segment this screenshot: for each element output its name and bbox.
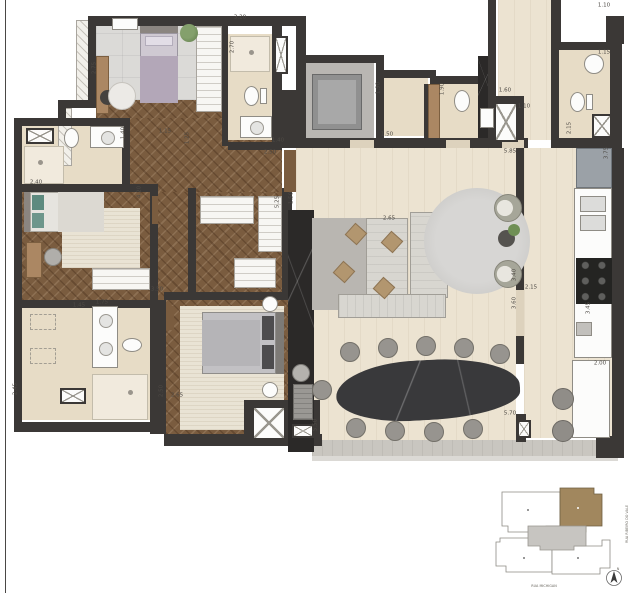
dimension-label: 1.15: [598, 50, 610, 56]
dimension-label: 2.50: [159, 385, 165, 397]
dresser: [112, 18, 138, 30]
closet-x: [292, 424, 314, 438]
dimension-label: 1.60: [499, 88, 511, 94]
dining-chair: [312, 380, 332, 400]
dimension-label: 3.75: [604, 147, 610, 159]
dimension-label: 3.20: [234, 15, 246, 21]
plan-element: [523, 557, 525, 559]
balcony-strip: [312, 440, 618, 456]
wall-segment: [296, 55, 384, 63]
dimension-label: 2.70: [230, 41, 236, 53]
barbecue-grill: [293, 384, 313, 420]
round-rug: [108, 82, 136, 110]
wall-segment: [150, 300, 166, 434]
door-opening: [166, 306, 174, 330]
shower-drain: [38, 160, 43, 165]
bar-stool: [552, 388, 574, 410]
toilet: [454, 90, 470, 112]
keyplan-unit-top-right-highlight: [560, 488, 602, 532]
tub-chair: [494, 260, 522, 288]
nightstand: [262, 382, 278, 398]
dimension-label: 3.40: [512, 269, 518, 281]
dining-chair: [490, 344, 510, 364]
dimension-label: 1.25: [185, 132, 191, 144]
shower-drain: [249, 50, 254, 55]
floor-plan: 3.202.752.701.402.501.151.401.252.404.20…: [0, 0, 638, 593]
closet-x: [60, 388, 86, 404]
dining-chair: [378, 338, 398, 358]
dimension-label: 2.15: [525, 285, 537, 291]
bar-stool: [552, 420, 574, 442]
sink-basin: [250, 121, 264, 135]
dimension-label: 1.90: [440, 83, 446, 95]
dimension-label: 2.65: [171, 393, 183, 399]
walkin-closet-shelf: [200, 196, 254, 224]
pantry-floor: [384, 78, 428, 136]
dimension-label: 5.25: [275, 196, 281, 208]
dimension-label: 5.70: [504, 411, 516, 417]
kitchen-island: [572, 360, 610, 438]
wall-segment: [551, 50, 559, 146]
wall-segment: [376, 70, 436, 78]
shower-drain: [128, 390, 133, 395]
dining-chair: [416, 336, 436, 356]
closet-marking: [30, 314, 56, 330]
dimension-label: 2.75: [92, 62, 98, 74]
plan-element: N: [617, 567, 620, 571]
dining-chair: [346, 418, 366, 438]
dimension-label: 2.00: [594, 361, 606, 367]
bed-double: [202, 312, 284, 374]
sink-basin: [101, 131, 115, 145]
wall-segment: [14, 300, 164, 308]
round-sink: [584, 54, 604, 74]
closet-x: [274, 36, 288, 74]
bedroom2-closet: [92, 268, 150, 290]
kitchen-sink: [580, 196, 606, 212]
marble-sink: [480, 108, 494, 128]
lavabo-wood-panel: [428, 84, 440, 142]
walkin-closet-shelf: [234, 258, 276, 288]
plan-element: [140, 56, 178, 103]
bedroom1-closet: [196, 26, 222, 112]
plan-element: [577, 557, 579, 559]
laundry-machine-top: [318, 80, 356, 124]
dimension-label: 1.50: [289, 192, 295, 204]
kitchen-sink: [580, 215, 606, 231]
desk: [26, 242, 42, 278]
wall-segment: [88, 16, 96, 104]
dimension-label: 1.50: [381, 132, 393, 138]
toilet: [570, 92, 585, 112]
toilet-tank: [260, 88, 267, 104]
dining-chair: [463, 419, 483, 439]
shower-master-bath: [92, 374, 148, 420]
plan-element: [202, 320, 260, 366]
closet-marking: [30, 348, 56, 364]
tub-chair: [494, 194, 522, 222]
keyplan-street-right: RUA RIBEIRO DO VALE: [625, 505, 629, 543]
toilet-tank: [586, 94, 593, 110]
dimension-label: 2.45: [13, 383, 19, 395]
dimension-label: 5.50: [313, 419, 319, 431]
toilet: [64, 128, 79, 148]
dimension-label: 2.65: [383, 216, 395, 222]
wall-segment: [606, 16, 624, 44]
keyplan-street-bottom: RUA MICHIGAN: [531, 584, 557, 588]
desk: [96, 56, 109, 114]
dimension-label: 4.20: [137, 186, 143, 198]
door-opening: [152, 196, 158, 224]
bed-single-1: [140, 26, 178, 103]
plan-element: [577, 507, 579, 509]
wall-segment: [14, 422, 166, 432]
plan-element: [58, 192, 104, 232]
plan-element: [527, 509, 529, 511]
dimension-label: 2.15: [567, 122, 573, 134]
bed-single-2: [24, 192, 104, 232]
plan-element: [276, 312, 284, 374]
dimension-label: 3.60: [512, 297, 518, 309]
dimension-label: 1.10: [598, 3, 610, 9]
counter-appliance: [576, 322, 592, 336]
keyplan: RUA RIBEIRO DO VALE RUA MICHIGAN N: [490, 486, 636, 590]
closet-x: [252, 406, 286, 440]
plan-element: [262, 316, 274, 340]
wall-segment: [14, 118, 126, 126]
wall-segment: [296, 55, 306, 145]
sink-basin: [99, 342, 113, 356]
dimension-label: 5.85: [504, 149, 516, 155]
sink-basin: [99, 314, 113, 328]
toilet: [122, 338, 142, 352]
wall-segment: [516, 336, 524, 364]
wall-segment: [222, 26, 228, 146]
closet-x: [592, 114, 612, 138]
nightstand: [262, 296, 278, 312]
dimension-label: 1.75: [96, 300, 108, 306]
sofa-chaise: [338, 294, 446, 318]
stove: [576, 258, 612, 304]
plan-element: [32, 213, 44, 228]
dimension-label: 2.40: [30, 180, 42, 186]
dimension-label: 3.50: [151, 287, 163, 293]
dimension-label: 1.45: [73, 303, 85, 309]
balcony-strip-edge: [312, 456, 618, 461]
door-opening: [284, 150, 296, 192]
plan-element: [32, 195, 44, 210]
dimension-label: 1.40: [121, 127, 127, 139]
dining-chair: [424, 422, 444, 442]
grill-sink: [292, 364, 310, 382]
plan-element: [262, 345, 274, 369]
wall-segment: [488, 0, 496, 98]
dining-chair: [340, 342, 360, 362]
dining-chair: [454, 338, 474, 358]
wall-segment: [596, 436, 624, 458]
page-edge-line: [5, 0, 6, 593]
closet-x: [494, 102, 518, 142]
dimension-label: 1.40: [272, 138, 284, 144]
door-opening: [446, 140, 470, 148]
dimension-label: 1.15: [159, 129, 171, 135]
north-arrow: N: [607, 567, 622, 586]
plant: [508, 224, 520, 236]
door-opening: [350, 140, 374, 148]
desk-chair: [44, 248, 62, 266]
plan-element: [145, 36, 173, 46]
wall-segment: [188, 188, 196, 298]
plan-element: [140, 26, 178, 33]
dining-chair: [385, 421, 405, 441]
closet-x: [517, 420, 531, 438]
dimension-label: 1.10: [518, 104, 530, 110]
dimension-label: 3.45: [586, 302, 592, 314]
dimension-label: 1.90: [376, 82, 382, 94]
closet-x: [26, 128, 54, 144]
plant: [180, 24, 198, 42]
dimension-label: 2.50: [264, 150, 276, 156]
toilet: [244, 86, 259, 106]
